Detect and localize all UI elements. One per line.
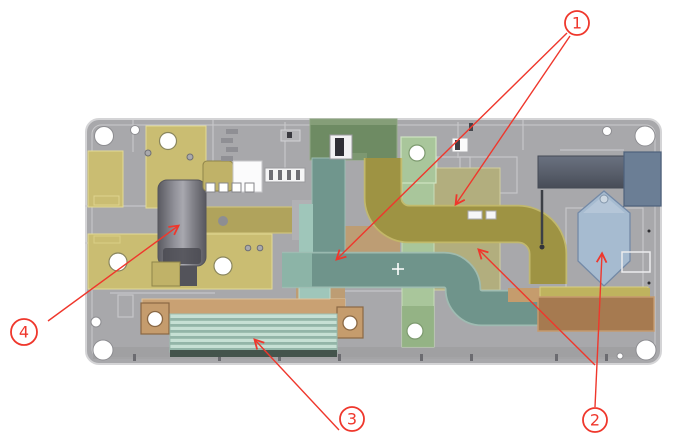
edge-connector <box>265 168 305 182</box>
slate-bar-component <box>538 156 624 188</box>
arm-pin <box>218 216 228 226</box>
dark-block <box>180 266 197 286</box>
slate-rod-tip <box>540 245 545 250</box>
callout-2-label: 2 <box>590 411 600 430</box>
figure-canvas: 1 2 3 4 <box>0 0 677 443</box>
ribbed-module <box>141 299 363 357</box>
teal-strip <box>312 158 345 254</box>
teal-ridge <box>299 204 313 253</box>
mini-connector <box>281 130 300 141</box>
callout-1-label: 1 <box>572 14 582 33</box>
steel-blue-block <box>624 152 661 206</box>
top-mid-connector <box>330 135 352 159</box>
dark-green-highlight <box>310 119 397 125</box>
screw-dot-a <box>648 230 651 233</box>
small-white-component <box>452 138 468 152</box>
teal-launch <box>282 253 312 287</box>
callout-3-label: 3 <box>347 410 357 429</box>
ribbed-base-bar <box>170 350 337 357</box>
brass-clamp <box>152 262 180 286</box>
screw-dot-b <box>648 282 651 285</box>
assembly-diagram: 1 2 3 4 <box>0 0 677 443</box>
white-pads <box>468 211 496 219</box>
callout-4-label: 4 <box>19 323 29 342</box>
brass-block-upper-left <box>88 151 123 207</box>
pentagon-pin <box>600 195 608 203</box>
